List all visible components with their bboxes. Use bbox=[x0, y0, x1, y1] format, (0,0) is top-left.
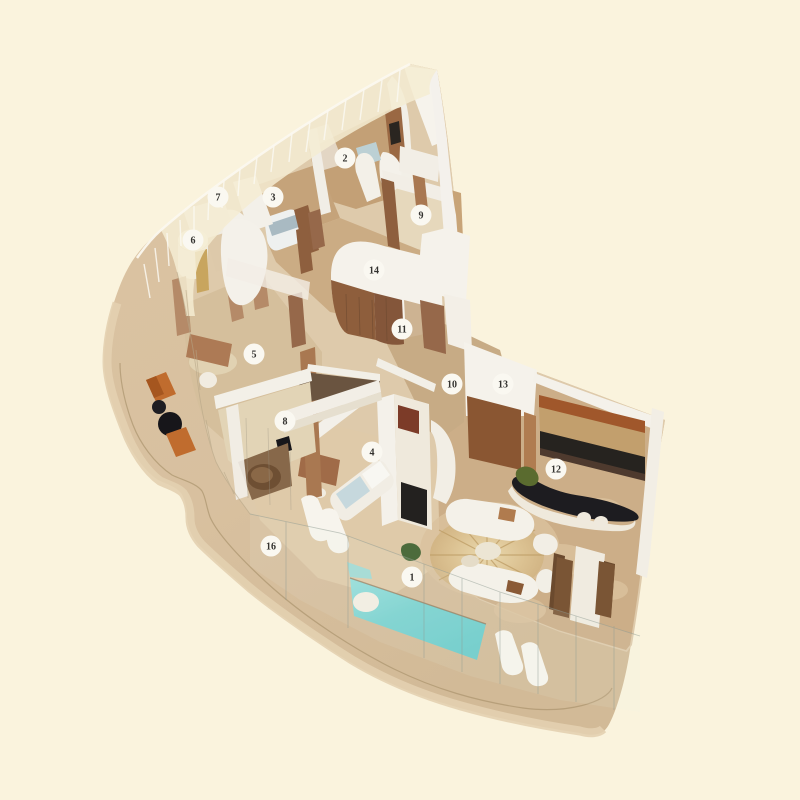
svg-text:8: 8 bbox=[283, 417, 288, 428]
svg-text:9: 9 bbox=[419, 211, 424, 222]
svg-text:4: 4 bbox=[370, 448, 375, 459]
svg-text:6: 6 bbox=[191, 236, 196, 247]
svg-text:11: 11 bbox=[397, 325, 406, 336]
svg-text:14: 14 bbox=[369, 266, 379, 277]
svg-text:7: 7 bbox=[216, 193, 221, 204]
svg-text:2: 2 bbox=[343, 154, 348, 165]
svg-text:16: 16 bbox=[266, 542, 276, 553]
svg-text:3: 3 bbox=[271, 193, 276, 204]
svg-text:13: 13 bbox=[498, 380, 508, 391]
svg-text:12: 12 bbox=[551, 465, 561, 476]
svg-text:5: 5 bbox=[252, 350, 257, 361]
svg-text:1: 1 bbox=[410, 573, 415, 584]
svg-text:10: 10 bbox=[447, 380, 457, 391]
